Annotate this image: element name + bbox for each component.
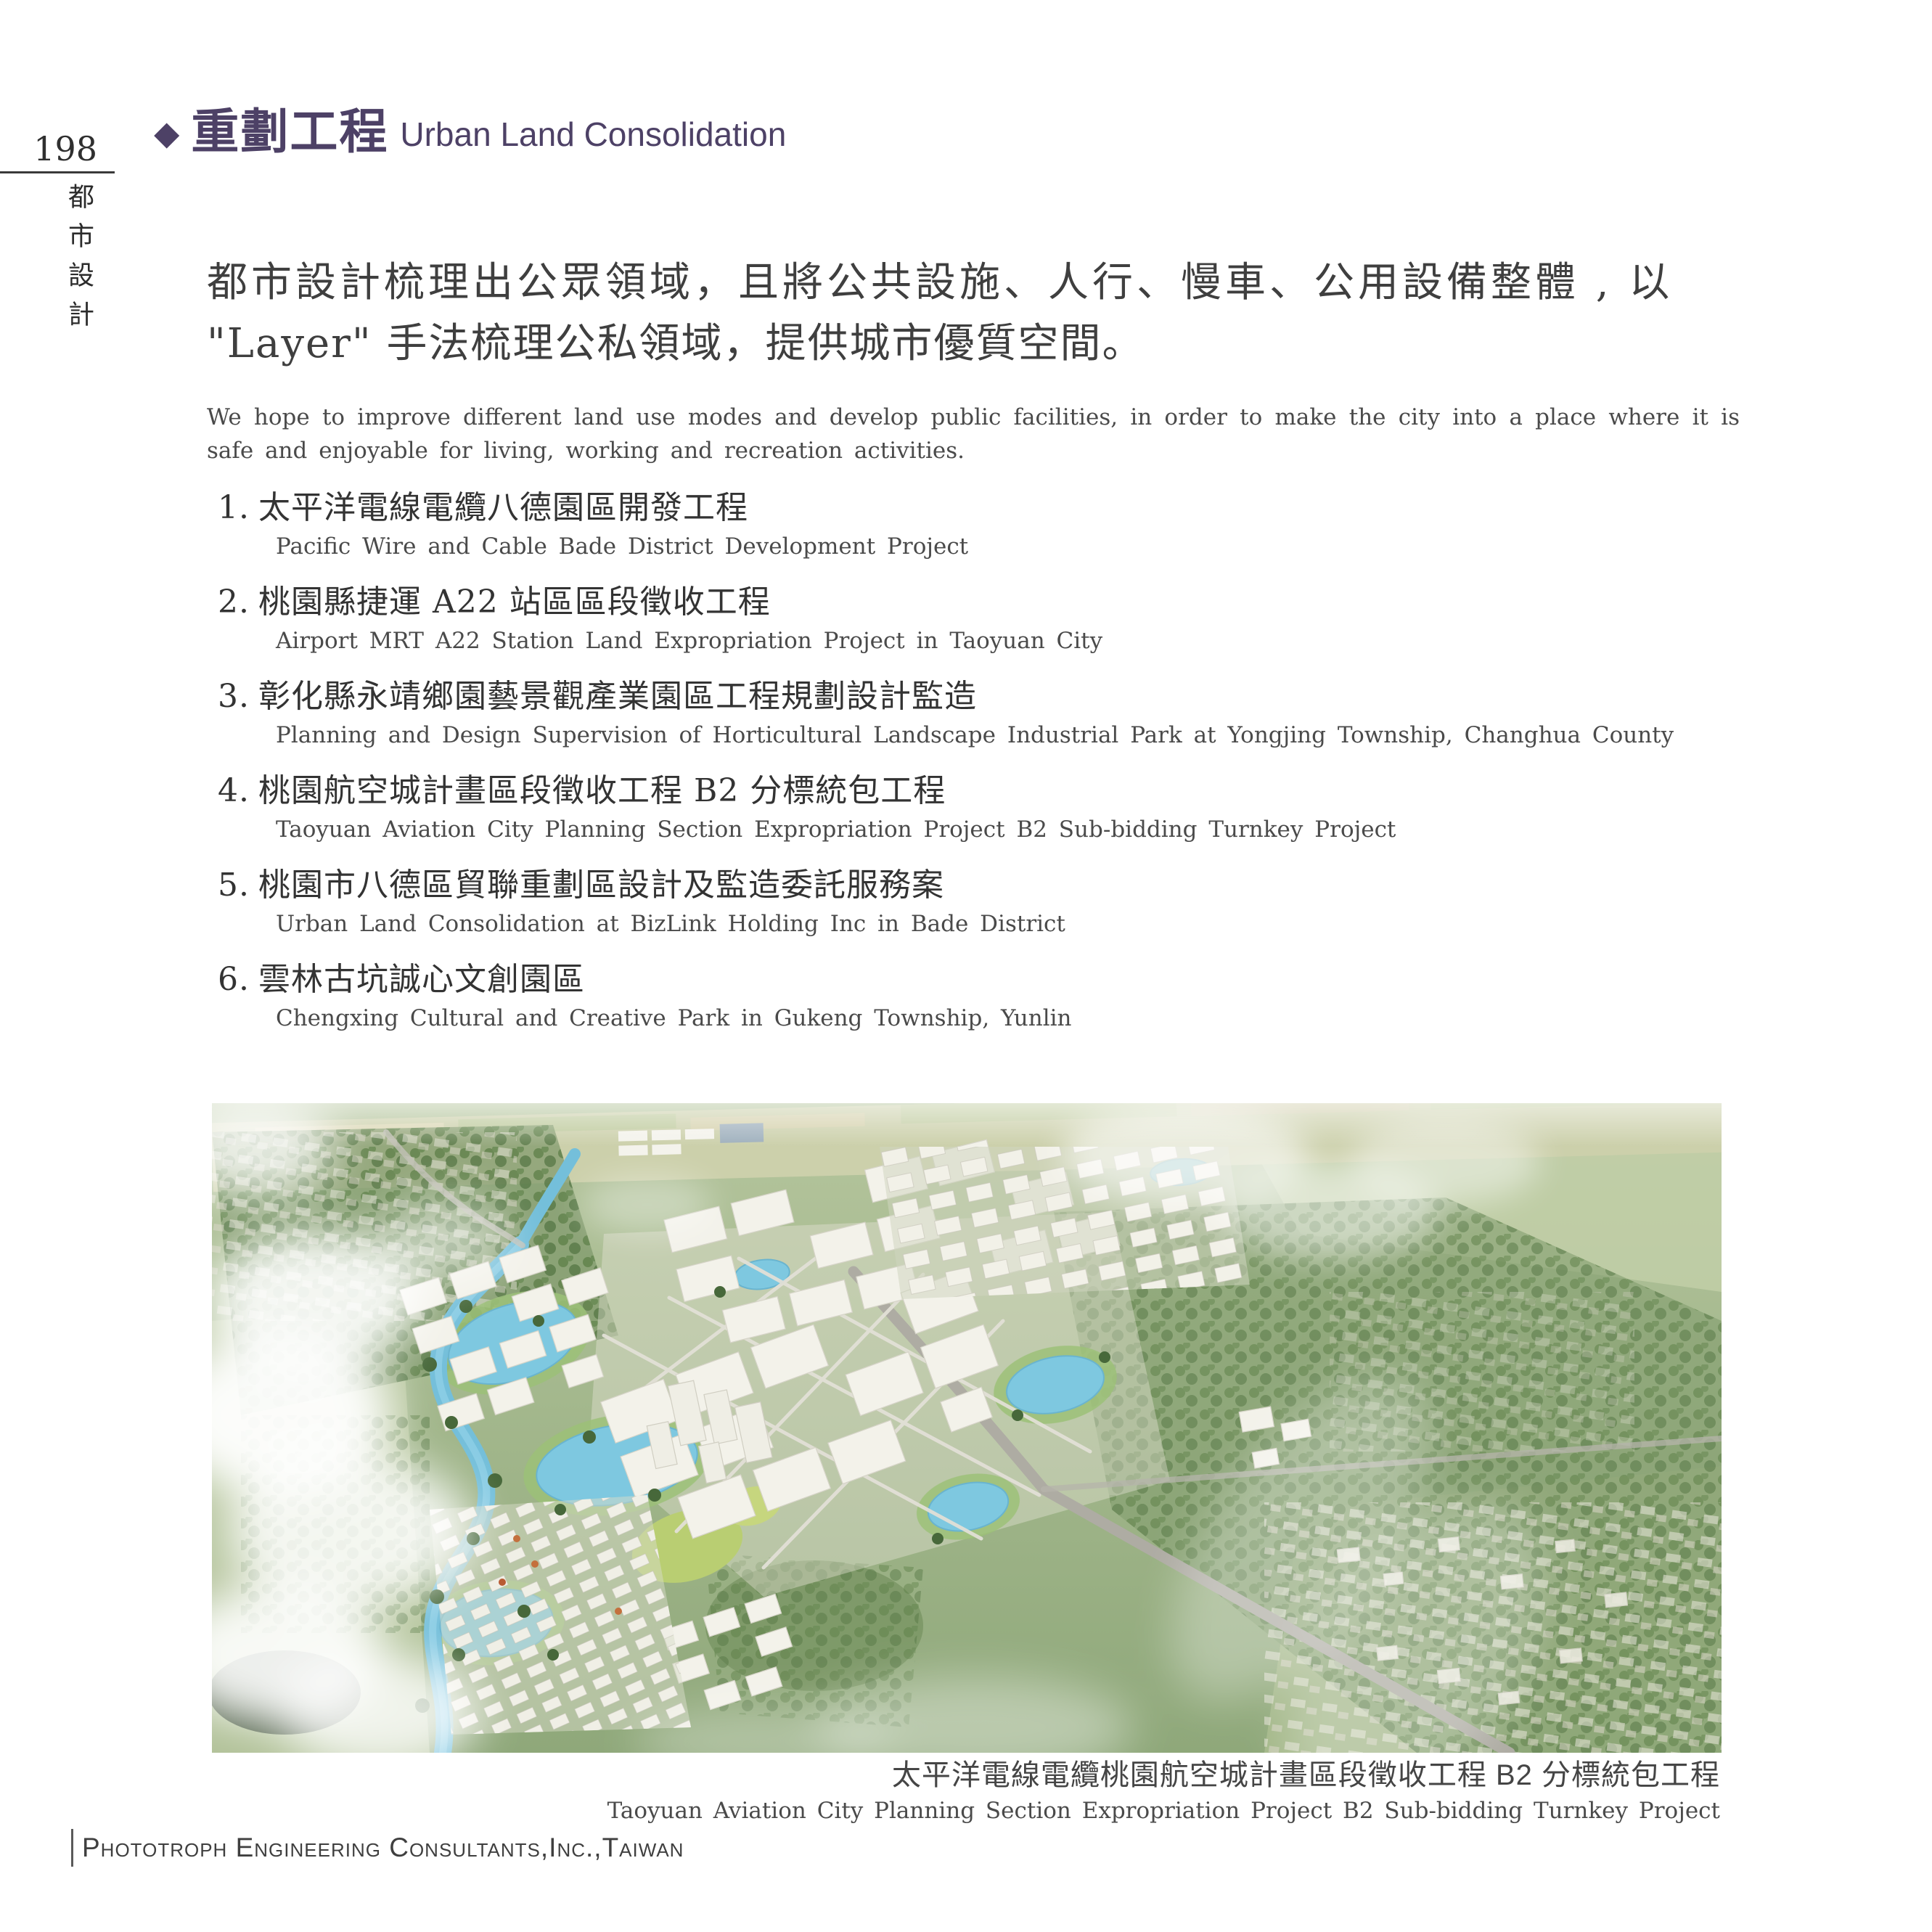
page-number: 198 — [0, 129, 115, 168]
figure-caption: 太平洋電線電纜桃園航空城計畫區段徵收工程 B2 分標統包工程 Taoyuan A… — [607, 1758, 1720, 1825]
figure-caption-en: Taoyuan Aviation City Planning Section E… — [607, 1797, 1720, 1825]
footer-rule — [71, 1829, 73, 1867]
project-title-en: Urban Land Consolidation at BizLink Hold… — [276, 910, 1756, 938]
project-title-en: Pacific Wire and Cable Bade District Dev… — [276, 533, 1756, 560]
aerial-rendering-image — [212, 1103, 1722, 1753]
project-title-zh: 太平洋電線電纜八德園區開發工程 — [258, 488, 748, 528]
project-title-en: Taoyuan Aviation City Planning Section E… — [276, 816, 1756, 843]
project-title-en: Airport MRT A22 Station Land Expropriati… — [276, 627, 1756, 655]
project-item: 4. 桃園航空城計畫區段徵收工程 B2 分標統包工程 Taoyuan Aviat… — [218, 771, 1756, 865]
project-number: 1. — [218, 488, 248, 528]
project-title-zh: 彰化縣永靖鄉園藝景觀產業園區工程規劃設計監造 — [258, 676, 977, 717]
page-number-rule — [0, 171, 115, 173]
project-title-zh: 雲林古坑誠心文創園區 — [258, 959, 585, 1000]
project-title-zh: 桃園航空城計畫區段徵收工程 B2 分標統包工程 — [258, 771, 946, 811]
figure — [212, 1103, 1722, 1753]
project-number: 5. — [218, 865, 248, 906]
projects-list: 1. 太平洋電線電纜八德園區開發工程 Pacific Wire and Cabl… — [218, 488, 1756, 1054]
project-item: 2. 桃園縣捷運 A22 站區區段徵收工程 Airport MRT A22 St… — [218, 582, 1756, 676]
project-item: 1. 太平洋電線電纜八德園區開發工程 Pacific Wire and Cabl… — [218, 488, 1756, 582]
intro-heading-line1: 都市設計梳理出公眾領域，且將公共設施、人行、慢車、公用設備整體 , 以 — [207, 253, 1753, 314]
project-title-en: Chengxing Cultural and Creative Park in … — [276, 1004, 1756, 1032]
project-number: 3. — [218, 676, 248, 717]
project-title-zh: 桃園市八德區貿聯重劃區設計及監造委託服務案 — [258, 865, 944, 906]
project-number: 2. — [218, 582, 248, 623]
section-header: ◆ 重劃工程 Urban Land Consolidation — [154, 107, 786, 155]
project-item: 6. 雲林古坑誠心文創園區 Chengxing Cultural and Cre… — [218, 959, 1756, 1054]
section-title-zh: 重劃工程 — [191, 107, 388, 155]
section-title-en: Urban Land Consolidation — [400, 118, 786, 151]
project-item: 3. 彰化縣永靖鄉園藝景觀產業園區工程規劃設計監造 Planning and D… — [218, 676, 1756, 771]
diamond-icon: ◆ — [154, 116, 179, 150]
page-footer: Phototroph Engineering Consultants,Inc.,… — [71, 1829, 684, 1867]
project-title-zh: 桃園縣捷運 A22 站區區段徵收工程 — [258, 582, 771, 623]
project-number: 4. — [218, 771, 248, 811]
footer-company: Phototroph Engineering Consultants,Inc.,… — [82, 1833, 684, 1863]
intro-heading: 都市設計梳理出公眾領域，且將公共設施、人行、慢車、公用設備整體 , 以 "Lay… — [207, 253, 1753, 374]
intro-body-en: We hope to improve different land use mo… — [207, 401, 1740, 467]
side-label-urban-design: 都市設計 — [60, 183, 97, 340]
project-title-en: Planning and Design Supervision of Horti… — [276, 721, 1756, 749]
project-number: 6. — [218, 959, 248, 1000]
intro-heading-line2: "Layer" 手法梳理公私領域，提供城市優質空間。 — [207, 314, 1753, 374]
project-item: 5. 桃園市八德區貿聯重劃區設計及監造委託服務案 Urban Land Cons… — [218, 865, 1756, 959]
figure-caption-zh: 太平洋電線電纜桃園航空城計畫區段徵收工程 B2 分標統包工程 — [607, 1758, 1720, 1793]
